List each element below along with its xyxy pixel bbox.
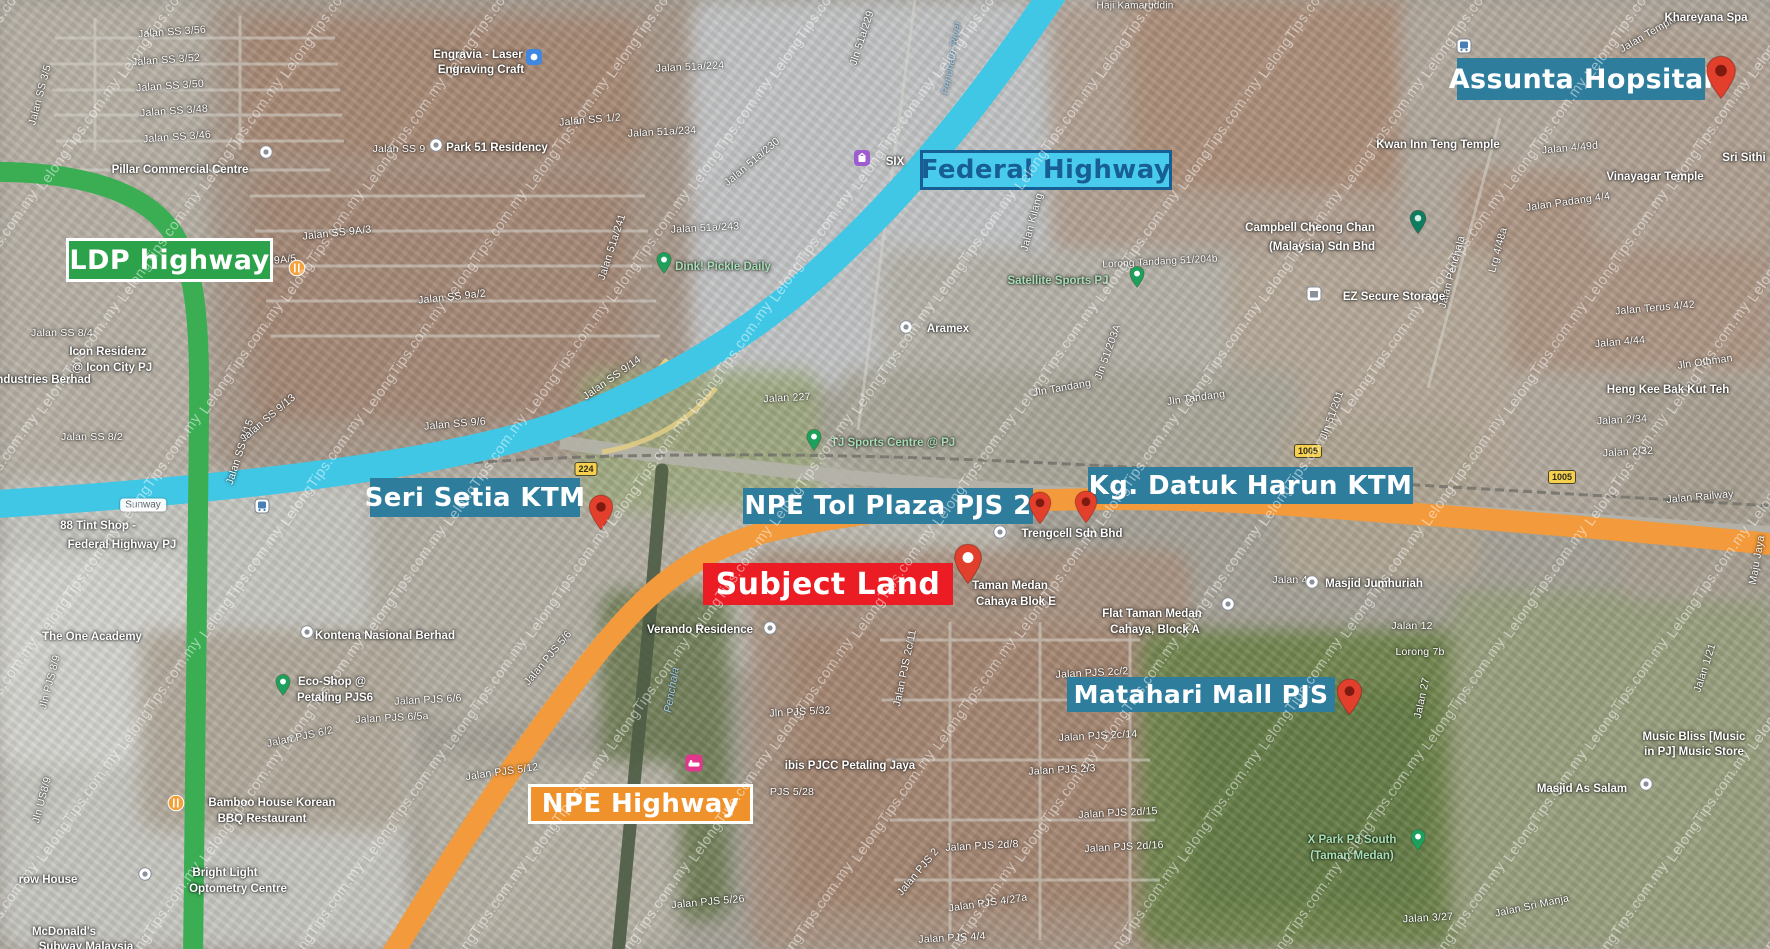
kg-datuk-harun-ktm-pin xyxy=(1074,490,1098,529)
shop-blue-icon xyxy=(526,49,542,65)
dot-icon xyxy=(1305,575,1319,589)
poi-label: SIX xyxy=(886,156,905,168)
street-label: Jalan 12 xyxy=(1391,620,1432,632)
pin-dark-icon xyxy=(1409,210,1427,235)
poi-label: McDonald's xyxy=(32,926,96,938)
poi-label: Federal Highway PJ xyxy=(68,539,177,551)
pin-green-icon xyxy=(1410,829,1426,852)
pin-green-icon xyxy=(656,252,672,275)
poi-label: Bamboo House Korean xyxy=(208,797,335,809)
street-label: Jalan 4 xyxy=(1272,574,1307,586)
park-poi-label: Satellite Sports PJ xyxy=(1008,275,1109,287)
route-badge: 224 xyxy=(574,462,597,476)
poi-label: Subway Malaysia xyxy=(39,941,134,949)
dot-icon xyxy=(429,138,443,152)
street-label: PJS 5/28 xyxy=(770,786,814,798)
poi-label: Industries Berhad xyxy=(0,374,91,386)
street-label: Jalan SS 8/2 xyxy=(61,431,123,443)
npe-tol-plaza-pin xyxy=(1028,491,1052,530)
poi-label: The One Academy xyxy=(42,631,142,643)
poi-label: Engravia - Laser xyxy=(433,49,522,61)
route-badge: 1005 xyxy=(1548,470,1576,484)
hotel-icon xyxy=(686,755,703,772)
dot-icon xyxy=(1639,777,1653,791)
street-label: Jalan 227 xyxy=(763,391,811,405)
poi-label: Aramex xyxy=(927,323,969,335)
street-label: Lorong 7b xyxy=(1395,646,1444,658)
poi-label: Park 51 Residency xyxy=(446,142,548,154)
poi-label: Khareyana Spa xyxy=(1664,12,1747,24)
poi-label: ibis PJCC Petaling Jaya xyxy=(785,760,915,772)
satellite-map[interactable]: Jalan SS 3/56Jalan SS 3/52Jalan SS 3/50J… xyxy=(0,0,1770,949)
storage-icon xyxy=(1307,287,1322,302)
restaurant-icon xyxy=(168,795,185,812)
poi-label: (Malaysia) Sdn Bhd xyxy=(1269,241,1375,253)
park-poi-label: Dink! Pickle Daily xyxy=(675,261,771,273)
dot-icon xyxy=(138,867,152,881)
subject-land-pin xyxy=(953,543,983,590)
bus-icon xyxy=(255,499,270,514)
poi-label: Taman Medan xyxy=(972,580,1048,592)
poi-label: Kontena Nasional Berhad xyxy=(315,630,455,642)
park-poi-label: TJ Sports Centre @ PJ xyxy=(831,437,955,449)
matahari-mall-pin xyxy=(1336,678,1363,721)
dot-icon xyxy=(1221,597,1235,611)
pin-green-icon xyxy=(275,674,291,697)
poi-label: Kwan Inn Teng Temple xyxy=(1376,139,1500,151)
dot-icon xyxy=(300,625,314,639)
poi-label: Sri Sithi xyxy=(1722,152,1765,164)
dot-icon xyxy=(763,621,777,635)
dot-icon xyxy=(993,525,1007,539)
poi-label: in PJ] Music Store xyxy=(1644,746,1744,758)
dot-icon xyxy=(259,145,273,159)
poi-label: Heng Kee Bak Kut Teh xyxy=(1607,384,1729,396)
poi-label: Music Bliss [Music xyxy=(1643,731,1746,743)
poi-label: Optometry Centre xyxy=(189,883,287,895)
